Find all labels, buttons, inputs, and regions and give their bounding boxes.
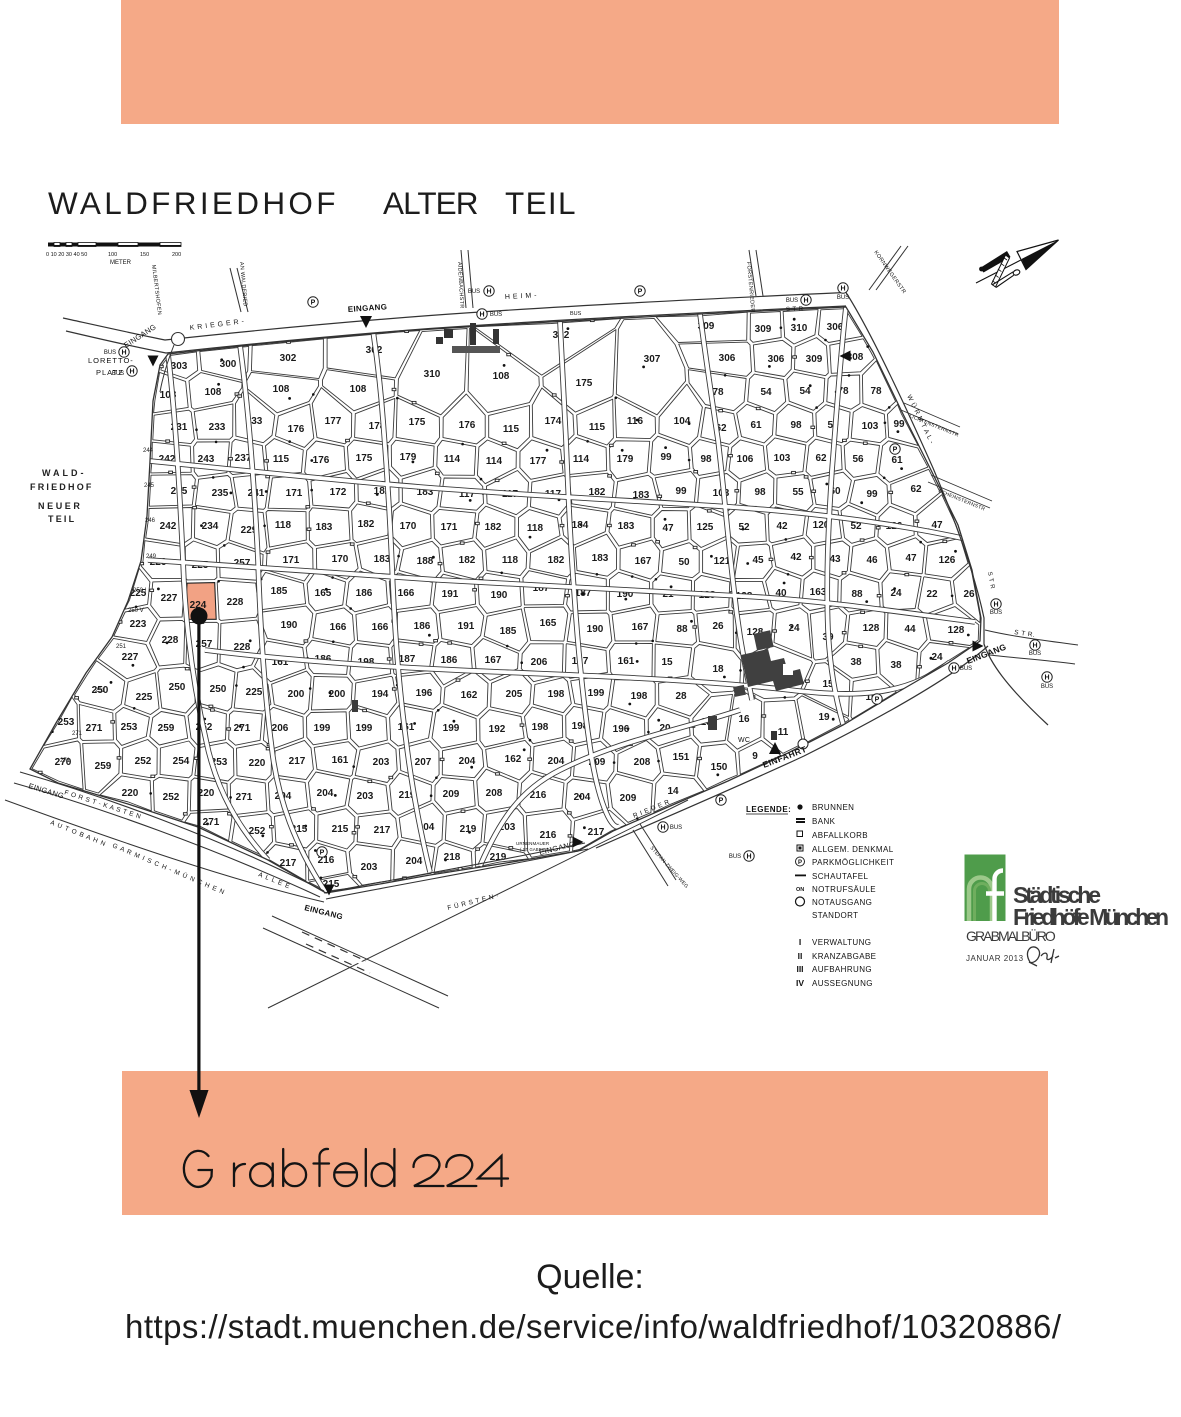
svg-text:78: 78 (870, 386, 882, 397)
svg-text:BUS: BUS (468, 289, 480, 295)
svg-text:H: H (746, 853, 751, 860)
svg-text:URNENMAUER: URNENMAUER (516, 841, 550, 846)
svg-text:253: 253 (121, 722, 138, 733)
svg-text:44: 44 (904, 624, 916, 635)
svg-text:99: 99 (660, 452, 672, 463)
svg-text:161: 161 (618, 656, 635, 667)
svg-text:252: 252 (249, 826, 266, 837)
svg-text:BUS: BUS (1041, 684, 1053, 690)
svg-text:115: 115 (503, 424, 520, 435)
svg-text:192: 192 (489, 724, 506, 735)
svg-text:227: 227 (122, 652, 139, 663)
svg-text:BUS: BUS (837, 295, 849, 301)
svg-text:167: 167 (485, 655, 502, 666)
svg-text:188: 188 (417, 556, 434, 567)
svg-text:150: 150 (711, 762, 728, 773)
svg-text:271: 271 (234, 723, 251, 734)
svg-text:ALTER: ALTER (383, 185, 480, 221)
svg-text:175: 175 (356, 453, 373, 464)
svg-text:227: 227 (161, 593, 178, 604)
svg-text:18: 18 (712, 664, 724, 675)
svg-text:204: 204 (459, 756, 476, 767)
svg-text:196: 196 (613, 724, 630, 735)
svg-text:271: 271 (60, 758, 71, 764)
svg-text:246: 246 (145, 518, 156, 524)
svg-text:165: 165 (315, 588, 332, 599)
svg-text:42: 42 (776, 521, 788, 532)
svg-text:220: 220 (122, 788, 139, 799)
svg-text:309: 309 (806, 354, 823, 365)
svg-text:108: 108 (350, 384, 367, 395)
svg-text:54: 54 (760, 387, 772, 398)
svg-text:KRANZABGABE: KRANZABGABE (812, 952, 876, 961)
svg-text:234: 234 (202, 521, 219, 532)
svg-text:NEUER: NEUER (38, 501, 83, 511)
svg-text:167: 167 (632, 622, 649, 633)
svg-text:BANK: BANK (812, 817, 836, 826)
svg-text:103: 103 (862, 421, 879, 432)
svg-text:99: 99 (866, 489, 878, 500)
svg-text:220: 220 (249, 758, 266, 769)
svg-text:104: 104 (674, 416, 691, 427)
svg-text:167: 167 (635, 556, 652, 567)
svg-text:162: 162 (461, 690, 478, 701)
svg-text:252: 252 (135, 756, 152, 767)
svg-text:166: 166 (372, 622, 389, 633)
svg-text:126: 126 (939, 555, 956, 566)
svg-text:174: 174 (545, 416, 562, 427)
svg-text:218: 218 (444, 852, 461, 863)
svg-text:NOTAUSGANG: NOTAUSGANG (812, 898, 872, 907)
svg-text:200: 200 (288, 689, 305, 700)
svg-text:190: 190 (491, 590, 508, 601)
svg-text:125: 125 (697, 522, 714, 533)
svg-text:III: III (796, 964, 803, 974)
svg-text:BUS: BUS (729, 854, 741, 860)
svg-text:P: P (638, 288, 643, 295)
svg-text:98: 98 (790, 420, 802, 431)
svg-text:P: P (311, 299, 316, 306)
svg-text:47: 47 (662, 523, 674, 534)
svg-text:307: 307 (644, 354, 661, 365)
svg-text:199: 199 (314, 723, 331, 734)
svg-text:206: 206 (272, 723, 289, 734)
svg-text:200: 200 (172, 252, 181, 258)
svg-text:22: 22 (926, 589, 938, 600)
svg-text:203: 203 (373, 757, 390, 768)
svg-text:209: 209 (620, 793, 637, 804)
svg-text:47: 47 (931, 520, 943, 531)
svg-text:61: 61 (891, 455, 903, 466)
svg-text:208: 208 (634, 757, 651, 768)
svg-text:38: 38 (850, 657, 862, 668)
svg-text:100: 100 (108, 252, 117, 258)
svg-text:88: 88 (851, 589, 863, 600)
svg-text:ALLGEM. DENKMAL: ALLGEM. DENKMAL (812, 845, 894, 854)
svg-text:183: 183 (618, 521, 635, 532)
svg-text:199: 199 (443, 723, 460, 734)
svg-text:175: 175 (409, 417, 426, 428)
svg-text:235: 235 (212, 488, 229, 499)
svg-text:IV: IV (796, 978, 804, 988)
svg-text:26: 26 (712, 621, 724, 632)
svg-text:271: 271 (86, 723, 103, 734)
svg-text:H: H (129, 368, 134, 375)
svg-text:166: 166 (398, 588, 415, 599)
svg-text:310: 310 (424, 369, 441, 380)
svg-text:H: H (660, 824, 665, 831)
svg-text:BUS: BUS (990, 610, 1002, 616)
svg-text:16: 16 (738, 714, 750, 725)
svg-text:206: 206 (531, 657, 548, 668)
svg-text:190: 190 (281, 620, 298, 631)
svg-text:208: 208 (486, 788, 503, 799)
svg-text:( ST GABRIEL ): ( ST GABRIEL ) (520, 847, 551, 852)
svg-text:108: 108 (493, 371, 510, 382)
svg-text:203: 203 (357, 791, 374, 802)
svg-text:II: II (798, 951, 803, 961)
svg-text:177: 177 (325, 416, 342, 427)
svg-text:28: 28 (675, 691, 687, 702)
svg-text:S T R: S T R (786, 306, 804, 313)
svg-text:198: 198 (532, 722, 549, 733)
svg-text:250: 250 (210, 684, 227, 695)
svg-text:252: 252 (163, 792, 180, 803)
svg-text:LORETTO-: LORETTO- (88, 356, 134, 365)
svg-text:179: 179 (617, 454, 634, 465)
svg-text:200: 200 (329, 689, 346, 700)
svg-text:196: 196 (416, 688, 433, 699)
svg-text:61: 61 (750, 420, 762, 431)
svg-text:186: 186 (441, 655, 458, 666)
svg-text:H: H (1032, 642, 1037, 649)
svg-text:BUS: BUS (570, 311, 582, 317)
svg-text:177: 177 (530, 456, 547, 467)
svg-text:183: 183 (316, 522, 333, 533)
svg-text:108: 108 (273, 384, 290, 395)
svg-text:186: 186 (356, 588, 373, 599)
svg-text:114: 114 (486, 456, 503, 467)
svg-text:170: 170 (400, 521, 417, 532)
svg-text:115: 115 (589, 422, 606, 433)
svg-text:24: 24 (788, 623, 800, 634)
svg-text:245: 245 (144, 483, 155, 489)
svg-text:244: 244 (143, 448, 154, 454)
svg-text:WALDFRIEDHOF: WALDFRIEDHOF (48, 185, 337, 221)
svg-text:ABFALLKORB: ABFALLKORB (812, 831, 868, 840)
svg-text:115: 115 (273, 454, 290, 465)
svg-text:15: 15 (661, 657, 673, 668)
svg-text:24: 24 (890, 588, 902, 599)
svg-text:204: 204 (317, 788, 334, 799)
svg-text:H: H (479, 311, 484, 318)
svg-text:88: 88 (676, 624, 688, 635)
svg-text:204: 204 (406, 856, 423, 867)
svg-text:251: 251 (116, 644, 127, 650)
svg-text:118: 118 (275, 520, 292, 531)
svg-text:14: 14 (667, 786, 679, 797)
svg-text:171: 171 (283, 555, 300, 566)
svg-text:METER: METER (110, 260, 132, 266)
svg-text:306: 306 (719, 353, 736, 364)
svg-text:P: P (893, 446, 898, 453)
svg-text:259: 259 (158, 723, 175, 734)
svg-text:191: 191 (442, 589, 459, 600)
svg-text:103: 103 (774, 453, 791, 464)
svg-text:47: 47 (905, 553, 917, 564)
svg-text:184: 184 (572, 520, 589, 531)
svg-text:42: 42 (790, 552, 802, 563)
svg-text:162: 162 (505, 754, 522, 765)
svg-text:186: 186 (414, 621, 431, 632)
svg-text:128: 128 (948, 625, 965, 636)
svg-text:176: 176 (288, 424, 305, 435)
svg-text:118: 118 (502, 555, 519, 566)
svg-text:AUFBAHRUNG: AUFBAHRUNG (812, 965, 872, 974)
svg-text:H: H (840, 285, 845, 292)
svg-text:183: 183 (374, 554, 391, 565)
svg-text:209: 209 (443, 789, 460, 800)
svg-text:251: 251 (95, 688, 106, 694)
svg-text:300: 300 (220, 359, 237, 370)
svg-text:98: 98 (754, 487, 766, 498)
svg-text:BUS: BUS (786, 298, 798, 304)
svg-text:116: 116 (627, 416, 644, 427)
svg-text:187: 187 (399, 654, 416, 665)
svg-text:PARKMÖGLICHKEIT: PARKMÖGLICHKEIT (812, 858, 894, 867)
svg-text:182: 182 (459, 555, 476, 566)
svg-text:38: 38 (890, 660, 902, 671)
svg-text:185: 185 (271, 586, 288, 597)
svg-text:55: 55 (792, 487, 804, 498)
svg-text:303: 303 (171, 361, 188, 372)
svg-text:9: 9 (752, 751, 758, 762)
svg-text:254: 254 (173, 756, 190, 767)
svg-text:223: 223 (130, 619, 147, 630)
svg-text:190: 190 (587, 624, 604, 635)
svg-text:175: 175 (576, 378, 593, 389)
svg-text:183: 183 (592, 553, 609, 564)
svg-text:199: 199 (356, 723, 373, 734)
svg-text:54: 54 (799, 386, 811, 397)
svg-text:165: 165 (540, 618, 557, 629)
svg-text:BUS: BUS (670, 825, 682, 831)
svg-text:46: 46 (866, 555, 878, 566)
svg-text:225: 225 (136, 692, 153, 703)
svg-text:62: 62 (910, 484, 922, 495)
svg-text:250 V: 250 V (128, 608, 144, 614)
svg-text:SCHAUTAFEL: SCHAUTAFEL (812, 872, 868, 881)
svg-text:150: 150 (140, 252, 149, 258)
svg-text:302: 302 (280, 353, 297, 364)
svg-text:161: 161 (332, 755, 349, 766)
svg-text:WALD-: WALD- (42, 468, 87, 478)
svg-text:Friedhöfe München: Friedhöfe München (1013, 904, 1169, 930)
svg-text:182: 182 (485, 522, 502, 533)
svg-text:166: 166 (330, 622, 347, 633)
svg-text:https://stadt.muenchen.de/serv: https://stadt.muenchen.de/service/info/w… (125, 1308, 1062, 1345)
svg-text:163: 163 (810, 587, 827, 598)
svg-text:271: 271 (203, 817, 220, 828)
svg-text:271: 271 (72, 731, 83, 737)
svg-text:191: 191 (458, 621, 475, 632)
svg-text:11: 11 (778, 727, 789, 738)
svg-text:26: 26 (963, 589, 975, 600)
svg-text:194: 194 (372, 689, 389, 700)
svg-text:172: 172 (330, 487, 347, 498)
svg-text:242: 242 (160, 521, 177, 532)
svg-text:BRUNNEN: BRUNNEN (812, 803, 854, 812)
svg-text:171: 171 (286, 488, 303, 499)
svg-text:198: 198 (548, 689, 565, 700)
svg-text:253: 253 (58, 717, 75, 728)
svg-text:PLATZ: PLATZ (96, 368, 124, 377)
svg-text:BUS: BUS (490, 312, 502, 318)
svg-text:99: 99 (893, 419, 905, 430)
svg-text:250: 250 (169, 682, 186, 693)
svg-text:259: 259 (95, 761, 112, 772)
svg-text:170: 170 (332, 554, 349, 565)
svg-text:306: 306 (768, 354, 785, 365)
svg-text:I: I (799, 937, 801, 947)
svg-text:H: H (803, 297, 808, 304)
svg-text:250 I: 250 I (133, 588, 147, 594)
svg-text:203: 203 (361, 862, 378, 873)
svg-text:NOTRUFSÄULE: NOTRUFSÄULE (812, 885, 876, 894)
svg-text:24: 24 (931, 652, 943, 663)
svg-text:H: H (951, 665, 956, 672)
svg-text:199: 199 (588, 688, 605, 699)
svg-text:52: 52 (738, 522, 750, 533)
svg-text:118: 118 (527, 523, 544, 534)
svg-text:H: H (1044, 674, 1049, 681)
svg-text:H: H (993, 601, 998, 608)
svg-text:P: P (875, 696, 880, 703)
svg-text:171: 171 (441, 522, 458, 533)
svg-text:217: 217 (588, 827, 605, 838)
svg-text:204: 204 (548, 756, 565, 767)
svg-text:43: 43 (829, 554, 841, 565)
svg-text:182: 182 (548, 555, 565, 566)
svg-text:151: 151 (673, 752, 690, 763)
svg-text:JANUAR 2013: JANUAR 2013 (966, 954, 1024, 963)
svg-text:106: 106 (737, 454, 754, 465)
svg-text:176: 176 (313, 455, 330, 466)
svg-text:BUS: BUS (1029, 651, 1041, 657)
svg-text:182: 182 (358, 519, 375, 530)
svg-text:WC: WC (738, 737, 750, 744)
svg-text:219: 219 (460, 824, 477, 835)
svg-text:VERWALTUNG: VERWALTUNG (812, 938, 871, 947)
svg-text:271: 271 (236, 792, 253, 803)
svg-text:249: 249 (146, 554, 157, 560)
svg-text:207: 207 (415, 757, 432, 768)
svg-text:198: 198 (631, 691, 648, 702)
svg-text:0 10 20 30 40 50: 0 10 20 30 40 50 (46, 252, 87, 258)
svg-text:STANDORT: STANDORT (812, 911, 858, 920)
svg-text:19: 19 (818, 712, 830, 723)
svg-text:P: P (320, 849, 325, 856)
svg-text:228: 228 (227, 597, 244, 608)
svg-text:45: 45 (752, 555, 764, 566)
svg-text:108: 108 (205, 387, 222, 398)
svg-text:179: 179 (400, 452, 417, 463)
svg-text:233: 233 (209, 422, 226, 433)
svg-text:TEIL: TEIL (505, 185, 577, 221)
svg-text:H: H (486, 288, 491, 295)
svg-text:185: 185 (500, 626, 517, 637)
svg-text:56: 56 (852, 454, 864, 465)
svg-text:215: 215 (332, 824, 349, 835)
svg-text:310: 310 (791, 323, 808, 334)
svg-text:LEGENDE:: LEGENDE: (746, 805, 791, 814)
svg-text:216: 216 (540, 830, 557, 841)
svg-text:205: 205 (506, 689, 523, 700)
svg-text:Quelle:: Quelle: (536, 1258, 644, 1296)
svg-text:TEIL: TEIL (48, 514, 76, 524)
svg-text:GRABMALBÜRO: GRABMALBÜRO (966, 927, 1058, 944)
svg-text:50: 50 (678, 557, 690, 568)
svg-text:176: 176 (459, 420, 476, 431)
svg-text:225: 225 (246, 687, 263, 698)
svg-text:217: 217 (374, 825, 391, 836)
svg-text:62: 62 (815, 453, 827, 464)
svg-text:309: 309 (755, 324, 772, 335)
svg-text:ON: ON (796, 887, 804, 893)
svg-text:204: 204 (574, 792, 591, 803)
svg-text:114: 114 (573, 454, 590, 465)
svg-text:128: 128 (863, 623, 880, 634)
svg-text:217: 217 (289, 756, 306, 767)
svg-text:98: 98 (700, 454, 712, 465)
svg-text:P: P (798, 860, 802, 866)
svg-text:114: 114 (444, 454, 461, 465)
svg-text:FRIEDHOF: FRIEDHOF (30, 482, 94, 492)
svg-text:228: 228 (162, 635, 179, 646)
svg-text:AUSSEGNUNG: AUSSEGNUNG (812, 979, 873, 988)
svg-text:P: P (719, 797, 724, 804)
svg-text:BUS: BUS (960, 666, 972, 672)
svg-text:99: 99 (675, 486, 687, 497)
